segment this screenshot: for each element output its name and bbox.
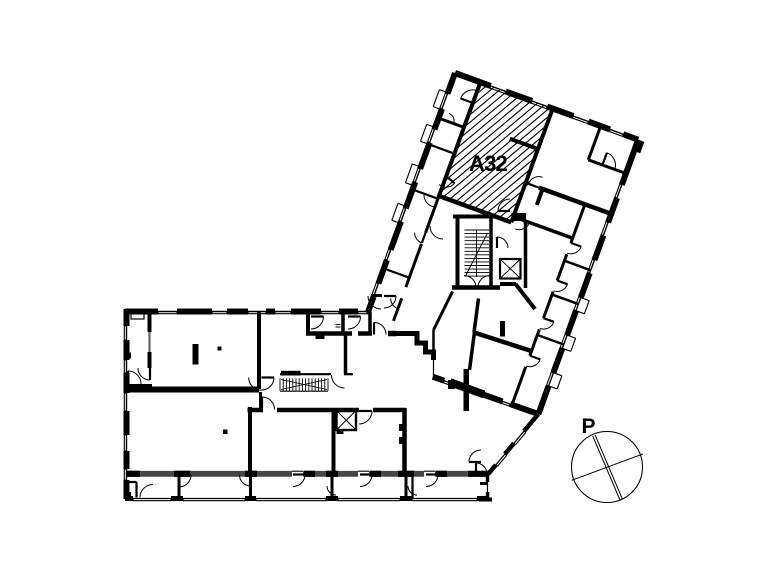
svg-text:A32: A32 [469,151,508,176]
svg-text:P: P [582,415,596,438]
